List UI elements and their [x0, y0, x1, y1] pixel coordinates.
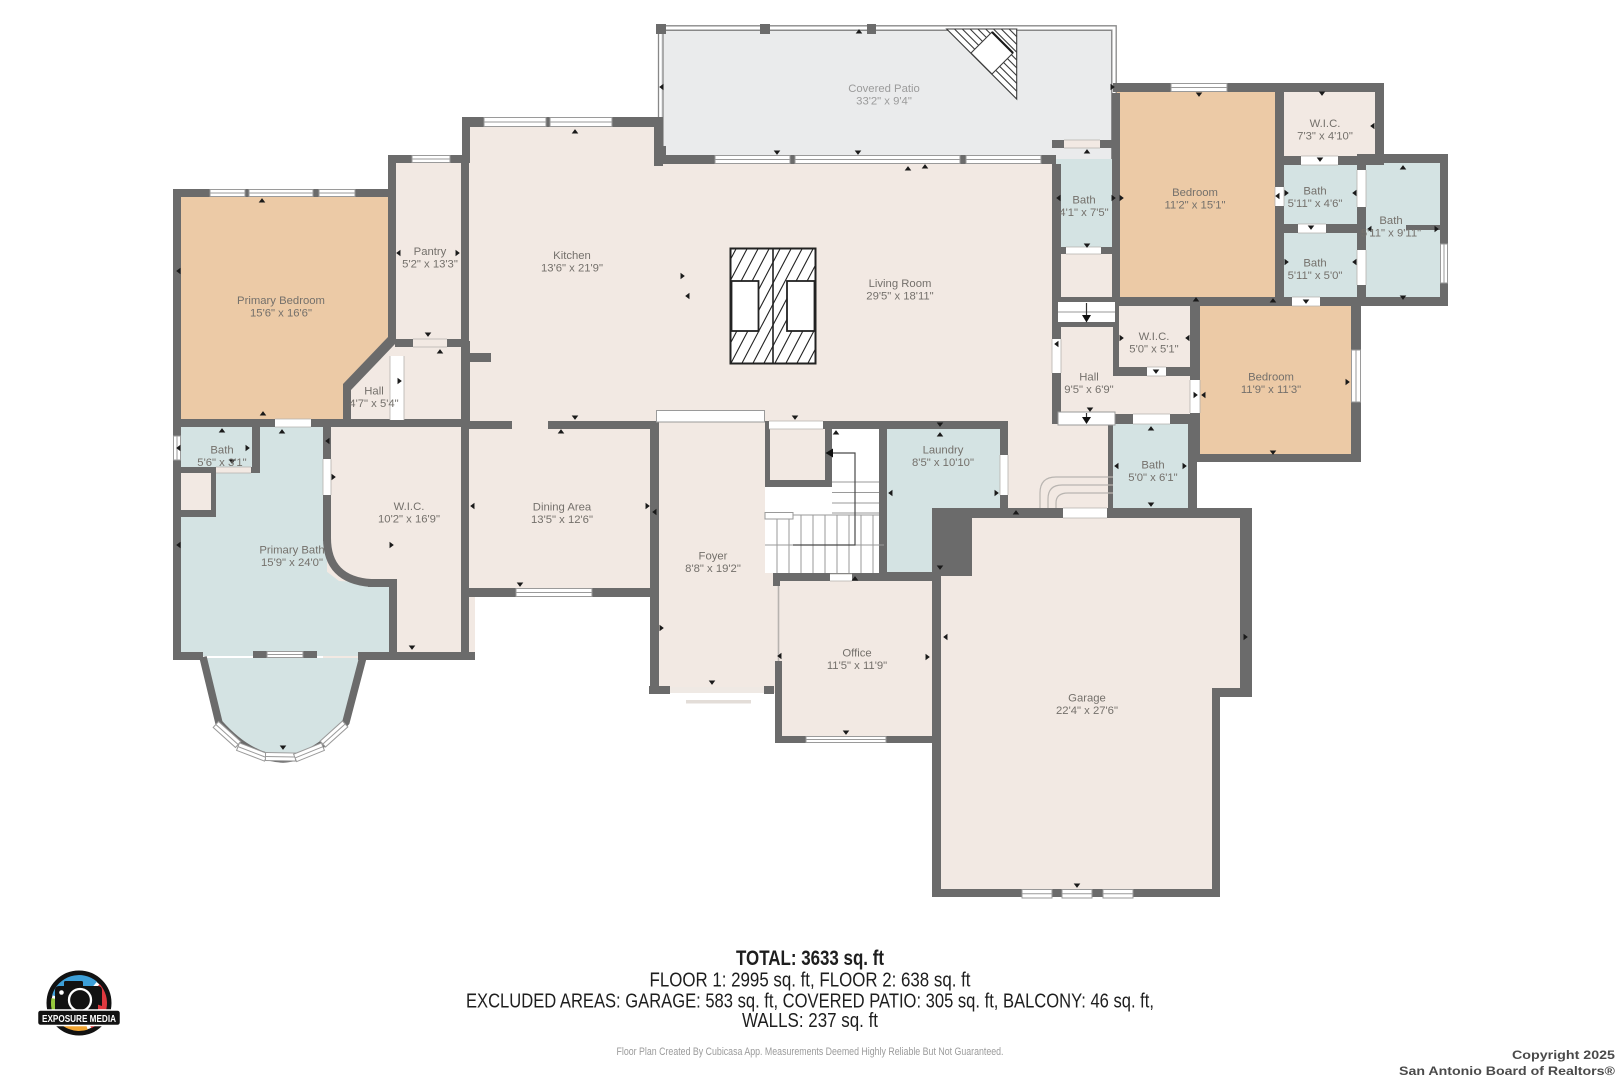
svg-text:8'8" x 19'2": 8'8" x 19'2" — [685, 563, 741, 575]
svg-text:8'5" x 10'10": 8'5" x 10'10" — [912, 457, 974, 469]
svg-text:5'11" x 9'11": 5'11" x 9'11" — [1361, 228, 1421, 240]
svg-text:Primary Bedroom: Primary Bedroom — [237, 295, 325, 307]
svg-text:Foyer: Foyer — [699, 551, 728, 563]
svg-text:11'5" x 11'9": 11'5" x 11'9" — [827, 660, 887, 672]
svg-text:Dining Area: Dining Area — [533, 502, 592, 514]
svg-text:Bath: Bath — [1303, 258, 1326, 270]
svg-text:FLOOR 1: 2995 sq. ft, FLOOR 2:: FLOOR 1: 2995 sq. ft, FLOOR 2: 638 sq. f… — [650, 970, 971, 992]
svg-text:Hall: Hall — [364, 386, 383, 398]
svg-text:13'6" x 21'9": 13'6" x 21'9" — [541, 263, 603, 275]
svg-text:5'2" x 13'3": 5'2" x 13'3" — [402, 259, 458, 271]
svg-text:Bath: Bath — [1072, 195, 1095, 207]
svg-text:11'2" x 15'1": 11'2" x 15'1" — [1164, 200, 1225, 212]
svg-text:15'9" x 24'0": 15'9" x 24'0" — [261, 557, 323, 569]
svg-text:4'7" x 5'4": 4'7" x 5'4" — [349, 398, 398, 410]
svg-text:15'6" x 16'6": 15'6" x 16'6" — [250, 308, 312, 320]
svg-text:13'5" x 12'6": 13'5" x 12'6" — [531, 514, 593, 526]
svg-text:Bath: Bath — [1141, 460, 1164, 472]
svg-text:Bedroom: Bedroom — [1248, 372, 1294, 384]
svg-text:Bedroom: Bedroom — [1172, 187, 1218, 199]
svg-text:7'3" x 4'10": 7'3" x 4'10" — [1297, 131, 1353, 143]
svg-text:10'2" x 16'9": 10'2" x 16'9" — [378, 514, 440, 526]
svg-text:Bath: Bath — [1303, 186, 1326, 198]
svg-text:5'0" x 5'1": 5'0" x 5'1" — [1129, 344, 1178, 356]
svg-text:W.I.C.: W.I.C. — [394, 501, 425, 513]
svg-text:22'4" x 27'6": 22'4" x 27'6" — [1056, 705, 1118, 717]
svg-text:29'5" x 18'11": 29'5" x 18'11" — [866, 291, 933, 303]
svg-text:33'2" x 9'4": 33'2" x 9'4" — [856, 96, 912, 108]
svg-text:TOTAL: 3633 sq. ft: TOTAL: 3633 sq. ft — [736, 946, 884, 970]
svg-text:EXPOSURE MEDIA: EXPOSURE MEDIA — [42, 1014, 116, 1025]
svg-text:11'9" x 11'3": 11'9" x 11'3" — [1241, 384, 1301, 396]
svg-text:WALLS: 237 sq. ft: WALLS: 237 sq. ft — [742, 1010, 878, 1032]
svg-text:Floor Plan Created By Cubicasa: Floor Plan Created By Cubicasa App. Meas… — [617, 1046, 1004, 1058]
svg-text:Bath: Bath — [210, 445, 233, 457]
svg-text:5'11" x 4'6": 5'11" x 4'6" — [1288, 198, 1343, 210]
svg-text:5'11" x 5'0": 5'11" x 5'0" — [1288, 270, 1343, 282]
svg-text:Pantry: Pantry — [414, 246, 447, 258]
svg-text:Kitchen: Kitchen — [553, 250, 591, 262]
svg-text:Garage: Garage — [1068, 693, 1106, 705]
svg-text:Office: Office — [842, 648, 871, 660]
svg-text:Hall: Hall — [1079, 372, 1098, 384]
svg-text:Living Room: Living Room — [869, 278, 932, 290]
svg-text:5'6" x 3'1": 5'6" x 3'1" — [197, 457, 246, 469]
svg-text:4'1" x 7'5": 4'1" x 7'5" — [1059, 207, 1108, 219]
svg-text:W.I.C.: W.I.C. — [1310, 118, 1341, 130]
svg-text:9'5" x 6'9": 9'5" x 6'9" — [1064, 384, 1113, 396]
svg-text:San Antonio Board of Realtors®: San Antonio Board of Realtors® — [1399, 1064, 1615, 1078]
svg-text:Covered Patio: Covered Patio — [848, 83, 920, 95]
svg-text:Bath: Bath — [1379, 215, 1402, 227]
svg-text:Copyright 2025: Copyright 2025 — [1512, 1048, 1615, 1062]
svg-text:W.I.C.: W.I.C. — [1139, 331, 1170, 343]
svg-text:Primary Bath: Primary Bath — [259, 545, 324, 557]
svg-text:5'0" x 6'1": 5'0" x 6'1" — [1128, 472, 1177, 484]
svg-text:Laundry: Laundry — [923, 445, 964, 457]
